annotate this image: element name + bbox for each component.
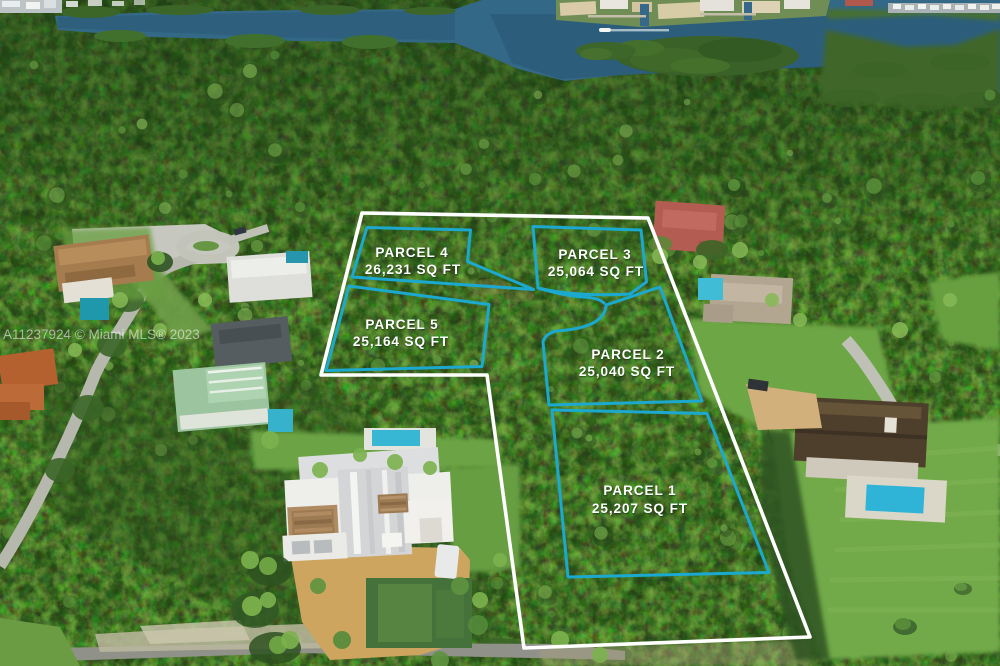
svg-text:26,231 SQ FT: 26,231 SQ FT: [365, 262, 461, 277]
svg-text:PARCEL 4: PARCEL 4: [375, 245, 448, 260]
svg-text:PARCEL 5: PARCEL 5: [365, 317, 438, 332]
svg-text:25,207 SQ FT: 25,207 SQ FT: [592, 501, 688, 516]
svg-text:25,164 SQ FT: 25,164 SQ FT: [353, 334, 449, 349]
svg-text:A11237924 © Miami MLS® 2023: A11237924 © Miami MLS® 2023: [3, 327, 200, 342]
svg-text:25,064 SQ FT: 25,064 SQ FT: [548, 264, 644, 279]
svg-text:PARCEL 3: PARCEL 3: [558, 247, 631, 262]
svg-text:PARCEL 1: PARCEL 1: [603, 483, 676, 498]
svg-text:25,040 SQ FT: 25,040 SQ FT: [579, 364, 675, 379]
svg-text:PARCEL 2: PARCEL 2: [591, 347, 664, 362]
